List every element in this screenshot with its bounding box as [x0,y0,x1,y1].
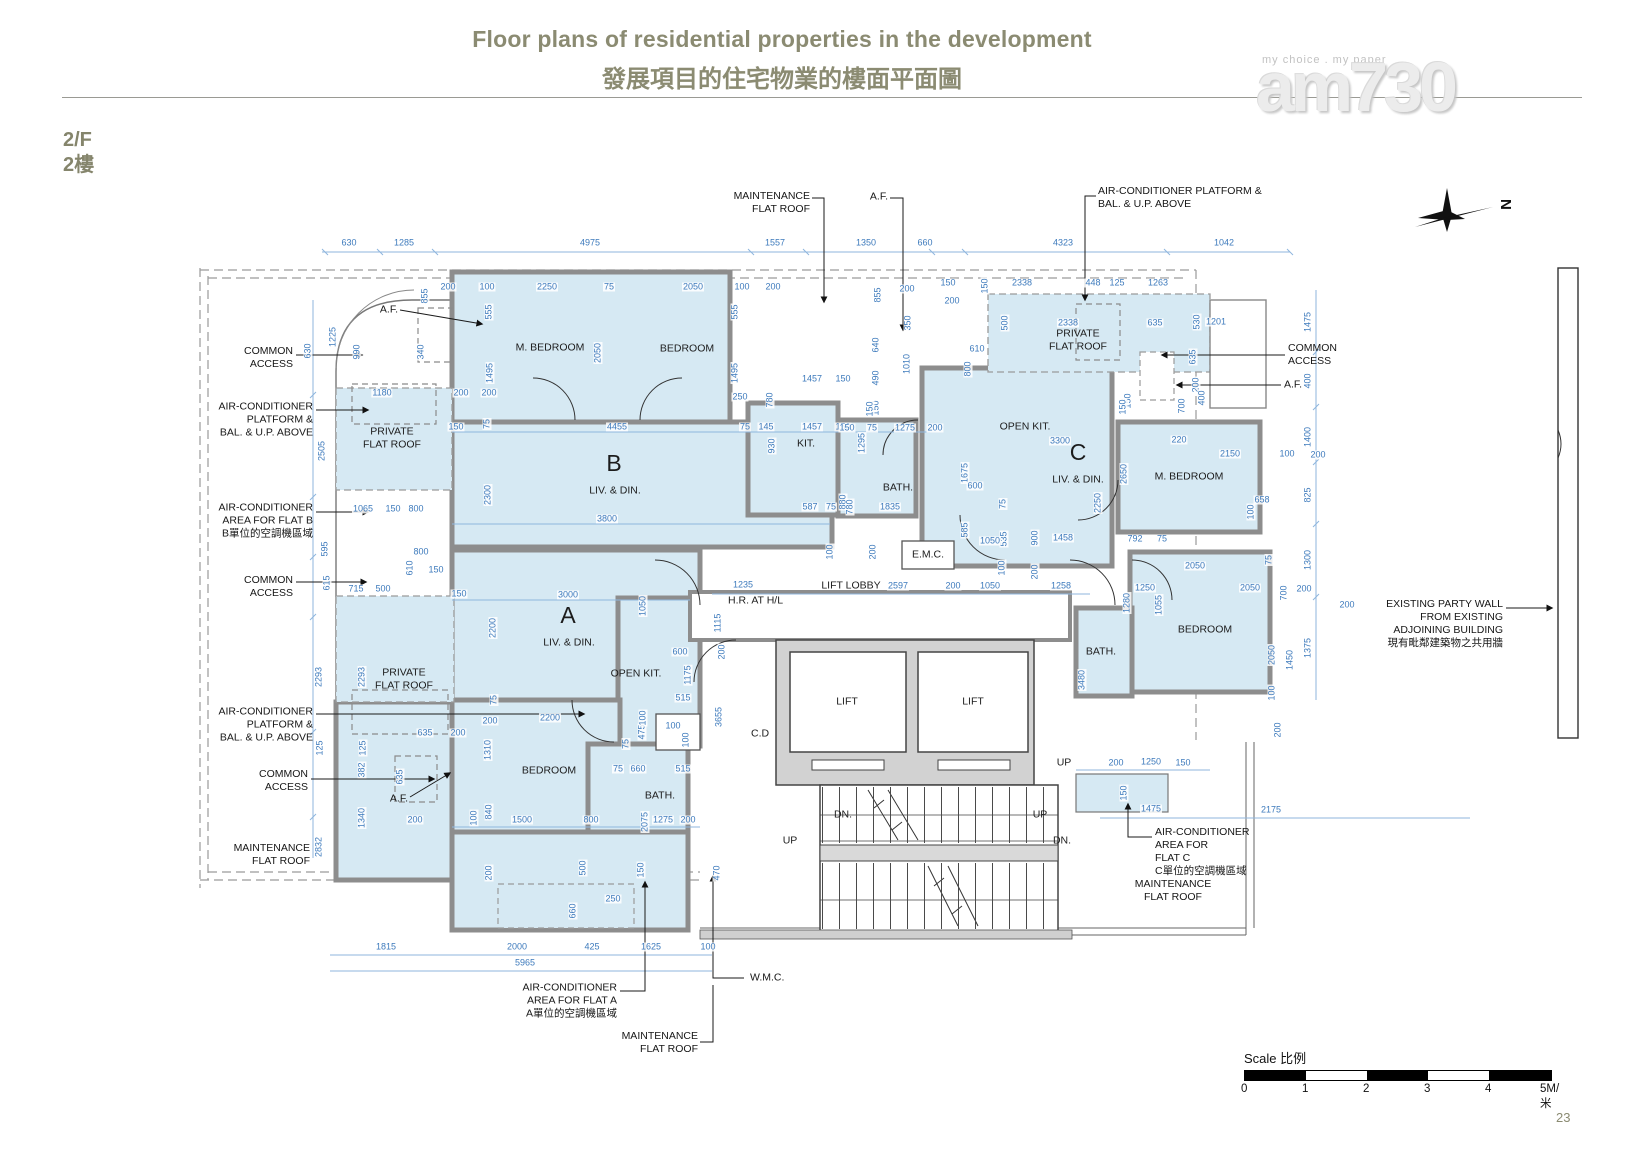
dimension-label: 200 [764,283,781,292]
dimension-label: 1400 [1304,426,1313,448]
dimension-label: 1010 [903,353,912,375]
callout-label: MAINTENANCE FLAT ROOF [622,1030,698,1056]
dimension-label: 2150 [1219,450,1241,459]
dimension-label: 200 [1295,585,1312,594]
dimension-label: 150 [1119,398,1128,415]
dimension-label: 2050 [1239,584,1261,593]
dimension-label: 150 [637,861,646,878]
dimension-label: 500 [374,585,391,594]
dimension-label: 1310 [484,739,493,761]
dimension-label: 3800 [596,515,618,524]
room-label: LIV. & DIN. [1052,474,1104,487]
dimension-label: 200 [898,285,915,294]
dimension-label: 930 [768,437,777,454]
dimension-label: 635 [1146,319,1163,328]
dimension-label: 2832 [315,836,324,858]
dimension-label: 610 [406,559,415,576]
dimension-label: 145 [757,423,774,432]
dimension-label: 1300 [1304,549,1313,571]
dimension-label: 150 [1174,759,1191,768]
dimension-label: 400 [1304,372,1313,389]
callout-label: AIR-CONDITIONER PLATFORM & BAL. & U.P. A… [1098,185,1262,211]
dimension-label: 150 [939,279,956,288]
dimension-label: 220 [1170,436,1187,445]
dimension-label: 792 [1126,535,1143,544]
dimension-label: 2250 [536,283,558,292]
dimension-label: 660 [569,902,578,919]
dimension-label: 200 [1107,759,1124,768]
dimension-label: 4455 [606,423,628,432]
room-label: LIV. & DIN. [589,485,641,498]
dimension-label: 610 [968,345,985,354]
dimension-label: 100 [699,943,716,952]
dimension-label: 100 [998,559,1007,576]
dimension-label: 100 [682,731,691,748]
room-label: UP [1033,809,1048,822]
dimension-label: 1475 [1304,311,1313,333]
dimension-label: 150 [834,375,851,384]
dimension-label: 200 [1274,721,1283,738]
dimension-label: 75 [490,694,499,706]
dimension-label: 4323 [1052,239,1074,248]
dimension-label: 200 [439,283,456,292]
dimension-label: 2338 [1011,279,1033,288]
room-label: C.D [751,728,769,741]
dimension-label: 660 [916,239,933,248]
dimension-label: 3300 [1049,437,1071,446]
callout-label: COMMON ACCESS [244,345,293,371]
dimension-label: 825 [1304,486,1313,503]
dimension-label: 200 [718,643,727,660]
dimension-label: 150 [838,424,855,433]
callout-label: AIR-CONDITIONER AREA FOR FLAT B B單位的空調機區… [219,501,314,540]
dimension-label: 100 [470,809,479,826]
dimension-label: 200 [481,717,498,726]
dimension-label: 840 [485,803,494,820]
room-label: A [560,602,575,630]
room-label: M. BEDROOM [516,342,585,355]
brochure-page: { "header": { "title_en": "Floor plans o… [0,0,1644,1158]
dimension-label: 150 [866,400,875,417]
dimension-label: 700 [1178,397,1187,414]
dimension-label: 200 [1338,601,1355,610]
dimension-label: 2293 [358,666,367,688]
dimension-label: 855 [421,287,430,304]
dimension-label: 1258 [1050,582,1072,591]
room-label: LIFT [836,696,858,709]
dimension-label: 1280 [1123,592,1132,614]
dimension-label: 595 [321,540,330,557]
dimension-label: 200 [485,864,494,881]
dimension-label: 2505 [318,440,327,462]
dimension-label: 200 [1309,451,1326,460]
dimension-label: 800 [412,548,429,557]
dimension-label: 125 [359,739,368,756]
dimension-label: 1175 [684,664,693,685]
callout-label: MAINTENANCE FLAT ROOF [734,190,810,216]
dimension-label: 515 [674,765,691,774]
dimension-label: 1375 [1304,637,1313,659]
dimension-label: 2075 [641,811,650,833]
dimension-label: 2250 [1094,492,1103,514]
dimension-label: 1835 [879,503,901,512]
dimension-label: 1201 [1205,318,1227,327]
dimension-label: 780 [766,391,775,408]
room-label: LIFT LOBBY [821,580,880,593]
plan-annotations: 6301285497515571350660432310422001002250… [0,0,1644,1158]
room-label: DN. [834,809,852,822]
dimension-label: 2650 [1120,463,1129,485]
callout-label: MAINTENANCE FLAT ROOF [1135,878,1211,904]
dimension-label: 100 [733,283,750,292]
dimension-label: 1275 [894,424,916,433]
dimension-label: 615 [323,574,332,591]
dimension-label: 200 [452,389,469,398]
dimension-label: 2050 [1184,562,1206,571]
room-label: BEDROOM [522,765,576,778]
room-label: PRIVATE FLAT ROOF [363,425,421,450]
dimension-label: 1180 [371,389,392,398]
dimension-label: 2175 [1260,806,1282,815]
dimension-label: 200 [449,729,466,738]
dimension-label: 900 [1031,529,1040,546]
room-label: PRIVATE FLAT ROOF [375,666,433,691]
dimension-label: 200 [480,389,497,398]
dimension-label: 75 [1265,554,1274,566]
room-label: PRIVATE FLAT ROOF [1049,327,1107,352]
callout-label: AIR-CONDITIONER PLATFORM & BAL. & U.P. A… [219,705,314,744]
dimension-label: 1475 [1140,805,1162,814]
dimension-label: 125 [316,739,325,756]
dimension-label: 640 [872,336,881,353]
dimension-label: 2050 [1268,644,1277,666]
dimension-label: 150 [981,277,990,294]
dimension-label: 1115 [714,613,723,634]
dimension-label: 150 [384,505,401,514]
room-label: UP [783,835,798,848]
room-label: H.R. AT H/L [728,595,783,608]
dimension-label: 1285 [393,239,415,248]
dimension-label: 635 [416,729,433,738]
dimension-label: 340 [417,343,426,360]
dimension-label: 2597 [887,582,909,591]
dimension-label: 400 [1198,389,1207,406]
room-label: E.M.C. [912,549,944,562]
dimension-label: 855 [874,286,883,303]
dimension-label: 1050 [639,595,648,617]
dimension-label: 1050 [979,537,1001,546]
dimension-label: 125 [1108,279,1125,288]
room-label: UP [1057,757,1072,770]
dimension-label: 2200 [539,714,561,723]
callout-label: AIR-CONDITIONER AREA FOR FLAT C C單位的空調機區… [1155,826,1250,879]
callout-label: W.M.C. [750,971,784,984]
dimension-label: 658 [1253,496,1270,505]
dimension-label: 1450 [1286,649,1295,671]
dimension-label: 700 [1280,584,1289,601]
dimension-label: 500 [579,859,588,876]
dimension-label: 470 [713,864,722,881]
dimension-label: 1250 [1140,758,1162,767]
room-label: LIFT [962,696,984,709]
dimension-label: 425 [583,943,600,952]
dimension-label: 4975 [579,239,601,248]
dimension-label: 1055 [1155,594,1164,616]
dimension-label: 100 [1278,450,1295,459]
callout-label: A.F. [1284,378,1302,391]
dimension-label: 5965 [514,959,536,968]
dimension-label: 2300 [484,484,493,506]
dimension-label: 200 [679,816,696,825]
room-label: BATH. [1086,646,1116,659]
dimension-label: 630 [340,239,357,248]
dimension-label: 200 [869,543,878,560]
dimension-label: 1340 [358,807,367,829]
dimension-label: 1625 [640,943,662,952]
dimension-label: 350 [904,314,913,331]
room-label: M. BEDROOM [1155,471,1224,484]
dimension-label: 150 [427,566,444,575]
room-label: BATH. [645,790,675,803]
dimension-label: 1263 [1147,279,1169,288]
dimension-label: 600 [671,648,688,657]
dimension-label: 100 [1247,503,1256,520]
room-label: BATH. [883,482,913,495]
dimension-label: 200 [1031,563,1040,580]
dimension-label: 100 [664,722,681,731]
dimension-label: 3655 [715,706,724,728]
dimension-label: 75 [483,418,492,430]
dimension-label: 1042 [1213,239,1235,248]
dimension-label: 780 [846,498,855,515]
dimension-label: 800 [964,360,973,377]
dimension-label: 1495 [486,362,495,384]
dimension-label: 382 [358,761,367,778]
callout-label: EXISTING PARTY WALL FROM EXISTING ADJOIN… [1386,598,1503,651]
callout-label: COMMON ACCESS [244,574,293,600]
dimension-label: 100 [639,709,648,726]
dimension-label: 1815 [375,943,397,952]
dimension-label: 200 [926,424,943,433]
dimension-label: 585 [961,521,970,538]
dimension-label: 448 [1084,279,1101,288]
dimension-label: 100 [1268,684,1277,701]
dimension-label: 1065 [352,505,374,514]
dimension-label: 75 [739,423,751,432]
room-label: LIV. & DIN. [543,637,595,650]
dimension-label: 587 [801,503,818,512]
dimension-label: 200 [944,582,961,591]
dimension-label: 150 [450,590,467,599]
dimension-label: 75 [999,498,1008,510]
dimension-label: 1458 [1052,534,1074,543]
dimension-label: 75 [866,424,878,433]
dimension-label: 250 [731,393,748,402]
dimension-label: 1050 [979,582,1001,591]
dimension-label: 1225 [329,326,338,348]
dimension-label: 1495 [731,362,740,384]
dimension-label: 250 [604,895,621,904]
callout-label: A.F. [390,792,408,805]
dimension-label: 75 [603,283,615,292]
room-label: OPEN KIT. [1000,421,1051,434]
dimension-label: 990 [353,343,362,360]
room-label: OPEN KIT. [611,668,662,681]
dimension-label: 630 [304,342,313,359]
dimension-label: 75 [612,765,624,774]
room-label: BEDROOM [1178,624,1232,637]
room-label: B [606,450,621,478]
dimension-label: 635 [1189,348,1198,365]
dimension-label: 515 [674,694,691,703]
dimension-label: 800 [582,816,599,825]
dimension-label: 490 [872,369,881,386]
dimension-label: 1500 [511,816,533,825]
dimension-label: 530 [1193,313,1202,330]
room-label: KIT. [797,438,815,451]
room-label: BEDROOM [660,343,714,356]
callout-label: A.F. [870,190,888,203]
dimension-label: 2050 [594,342,603,364]
dimension-label: 660 [629,765,646,774]
dimension-label: 75 [1156,535,1168,544]
dimension-label: 2000 [506,943,528,952]
dimension-label: 150 [1120,784,1129,801]
callout-label: AIR-CONDITIONER PLATFORM & BAL. & U.P. A… [219,400,314,439]
callout-label: COMMON ACCESS [259,768,308,794]
dimension-label: 1295 [858,432,867,454]
dimension-label: 3000 [557,591,579,600]
room-label: C [1070,439,1087,467]
dimension-label: 2338 [1057,319,1079,328]
dimension-label: 1235 [732,581,754,590]
dimension-label: 1557 [764,239,786,248]
callout-label: MAINTENANCE FLAT ROOF [234,842,310,868]
dimension-label: 2293 [315,666,324,688]
dimension-label: 1250 [1134,584,1156,593]
dimension-label: 555 [731,303,740,320]
dimension-label: 1275 [652,816,674,825]
dimension-label: 800 [407,505,424,514]
dimension-label: 75 [622,738,631,750]
dimension-label: 200 [943,297,960,306]
callout-label: AIR-CONDITIONER AREA FOR FLAT A A單位的空調機區… [523,981,618,1020]
callout-label: A.F. [380,303,398,316]
dimension-label: 200 [406,816,423,825]
dimension-label: 1350 [855,239,877,248]
callout-label: COMMON ACCESS [1288,342,1337,368]
dimension-label: 75 [825,503,837,512]
dimension-label: 100 [826,543,835,560]
dimension-label: 2200 [489,617,498,639]
dimension-label: 555 [485,303,494,320]
room-label: DN. [1053,835,1071,848]
dimension-label: 500 [1001,314,1010,331]
dimension-label: 150 [447,423,464,432]
dimension-label: 2050 [682,283,704,292]
dimension-label: 600 [966,482,983,491]
dimension-label: 1457 [801,423,823,432]
dimension-label: 1457 [801,375,823,384]
dimension-label: 100 [478,283,495,292]
dimension-label: 715 [347,585,364,594]
dimension-label: 635 [396,768,405,785]
dimension-label: 3480 [1078,669,1087,691]
